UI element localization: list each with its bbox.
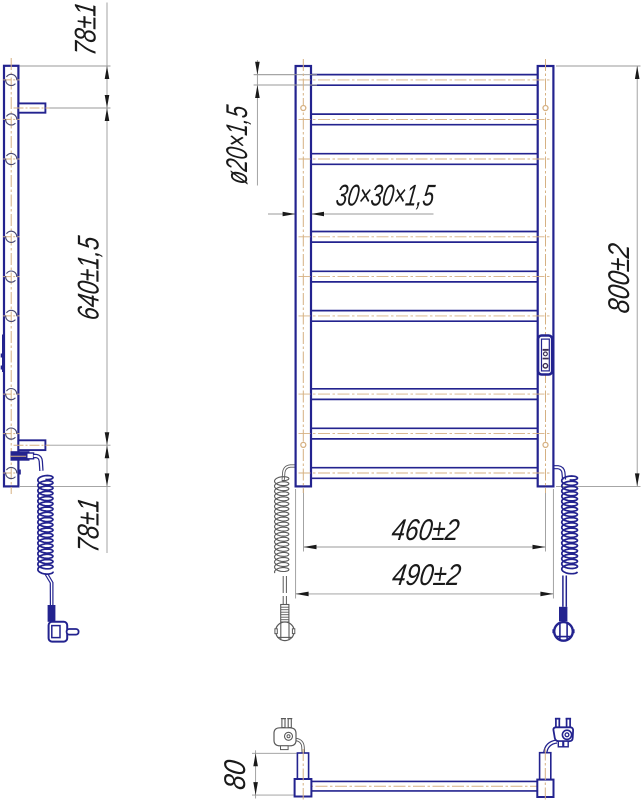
svg-text:30×30×1,5: 30×30×1,5 [334, 180, 437, 213]
svg-text:78±1: 78±1 [73, 496, 106, 555]
svg-text:78±1: 78±1 [70, 0, 103, 58]
svg-text:460±2: 460±2 [390, 514, 462, 547]
svg-text:640±1,5: 640±1,5 [73, 234, 106, 322]
svg-text:490±2: 490±2 [390, 559, 463, 592]
svg-text:ø20×1,5: ø20×1,5 [221, 103, 254, 186]
svg-text:800±2: 800±2 [603, 241, 636, 315]
svg-text:80: 80 [219, 758, 252, 792]
